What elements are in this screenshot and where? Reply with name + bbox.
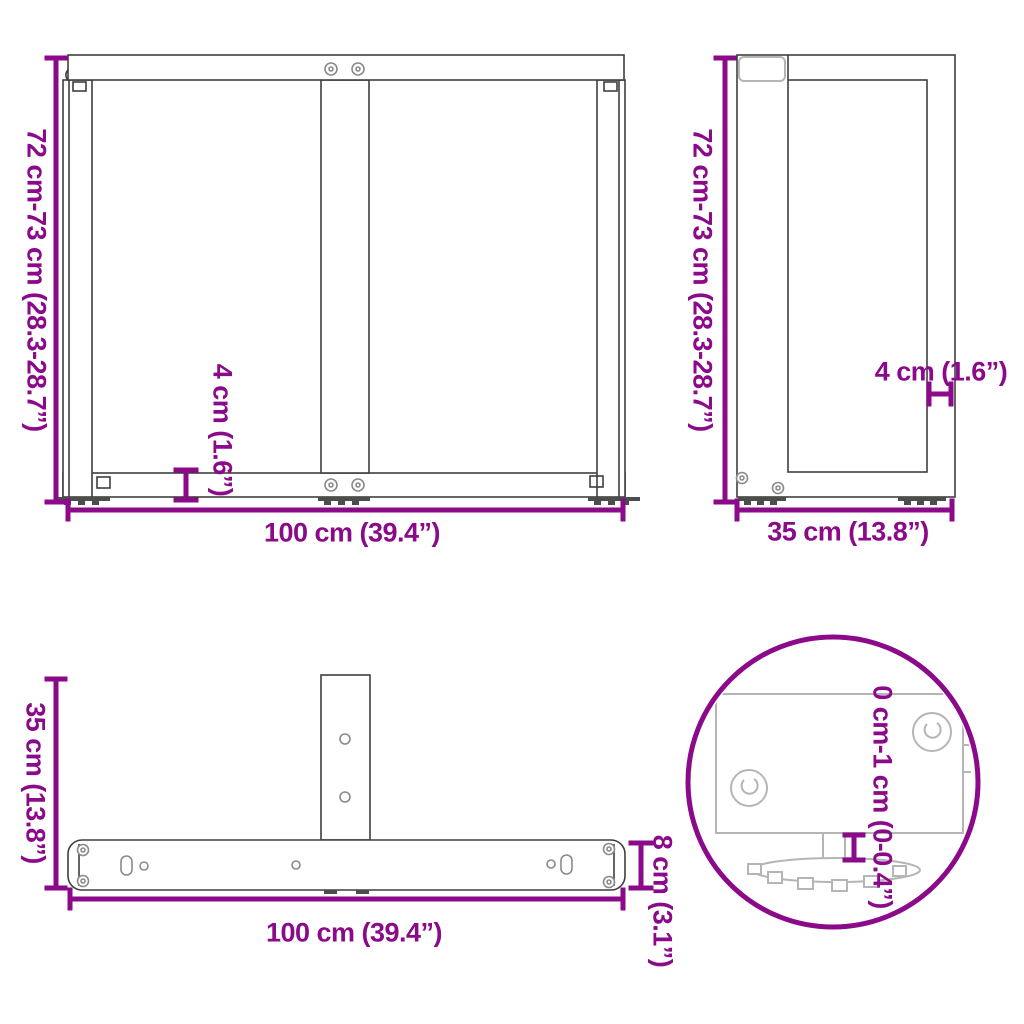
dimension-diagram: 72 cm-73 cm (28.3-28.7”) 4 cm (1.6”) 100… (0, 0, 1024, 1024)
top-view-drawing (68, 675, 625, 894)
detail-adjust-label: 0 cm-1 cm (0-0.4”) (867, 685, 898, 909)
front-height-label: 72 cm-73 cm (28.3-28.7”) (21, 128, 52, 431)
foot-pad (738, 497, 946, 505)
side-bar-label: 4 cm (1.6”) (875, 357, 1008, 388)
side-depth-label: 35 cm (13.8”) (767, 517, 929, 548)
front-view-drawing (58, 55, 640, 505)
front-bar-label: 4 cm (1.6”) (207, 364, 238, 497)
side-view-drawing (737, 55, 956, 505)
top-width-label: 100 cm (39.4”) (266, 918, 442, 949)
detail-circle-drawing (688, 637, 978, 927)
foot-pad (58, 497, 640, 505)
front-width-label: 100 cm (39.4”) (264, 518, 440, 549)
side-height-label: 72 cm-73 cm (28.3-28.7”) (687, 128, 718, 431)
top-bar-label: 8 cm (3.1”) (647, 835, 678, 968)
top-depth-label: 35 cm (13.8”) (20, 702, 51, 864)
